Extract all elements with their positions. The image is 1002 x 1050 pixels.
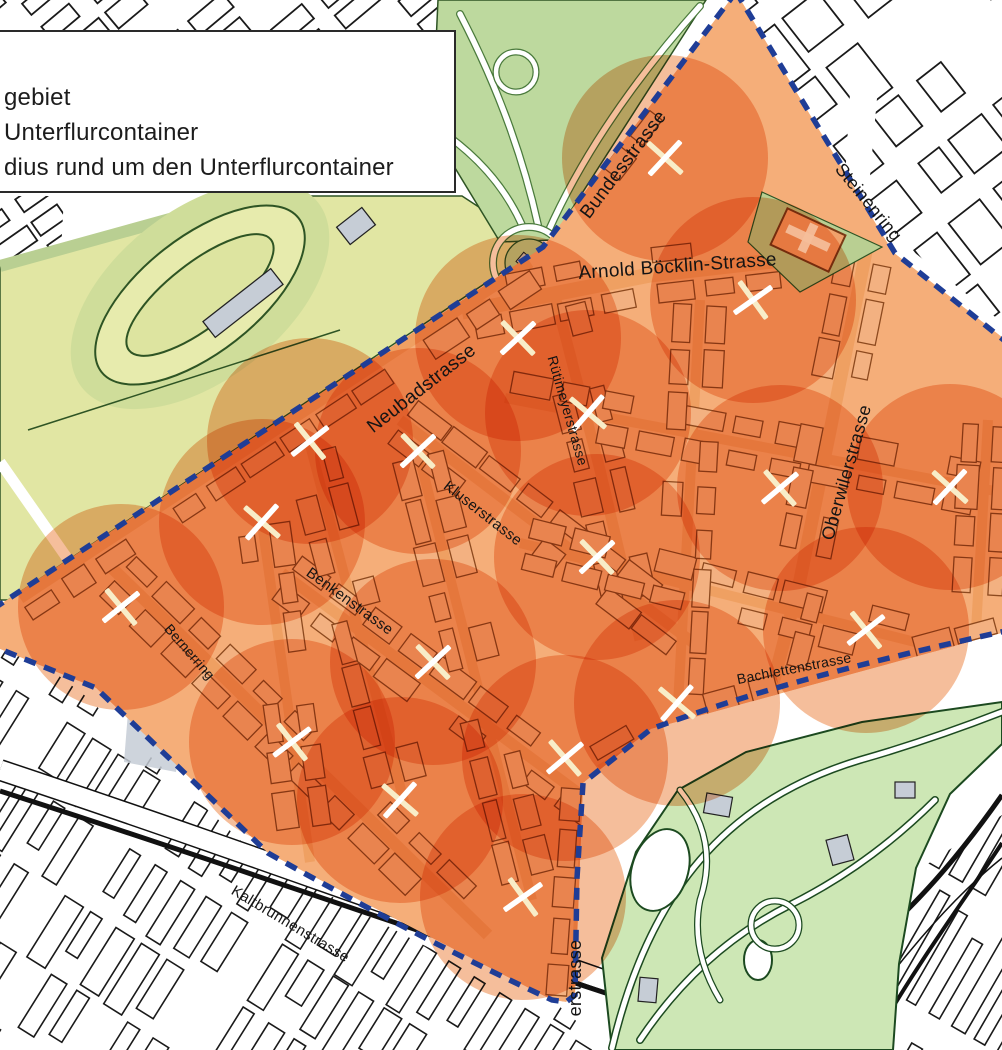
legend-box: gebiet Unterflurcontainer dius rund um d…: [0, 30, 456, 193]
legend-item-pilot-area: gebiet: [4, 84, 71, 112]
legend-item-radius: dius rund um den Unterflurcontainer: [4, 154, 394, 182]
street-label-erstrasse: erstrasse: [565, 940, 585, 1017]
legend-item-container-location: Unterflurcontainer: [4, 119, 198, 147]
map-stage: BundesstrasseSteinenringArnold Böcklin-S…: [0, 0, 1002, 1050]
